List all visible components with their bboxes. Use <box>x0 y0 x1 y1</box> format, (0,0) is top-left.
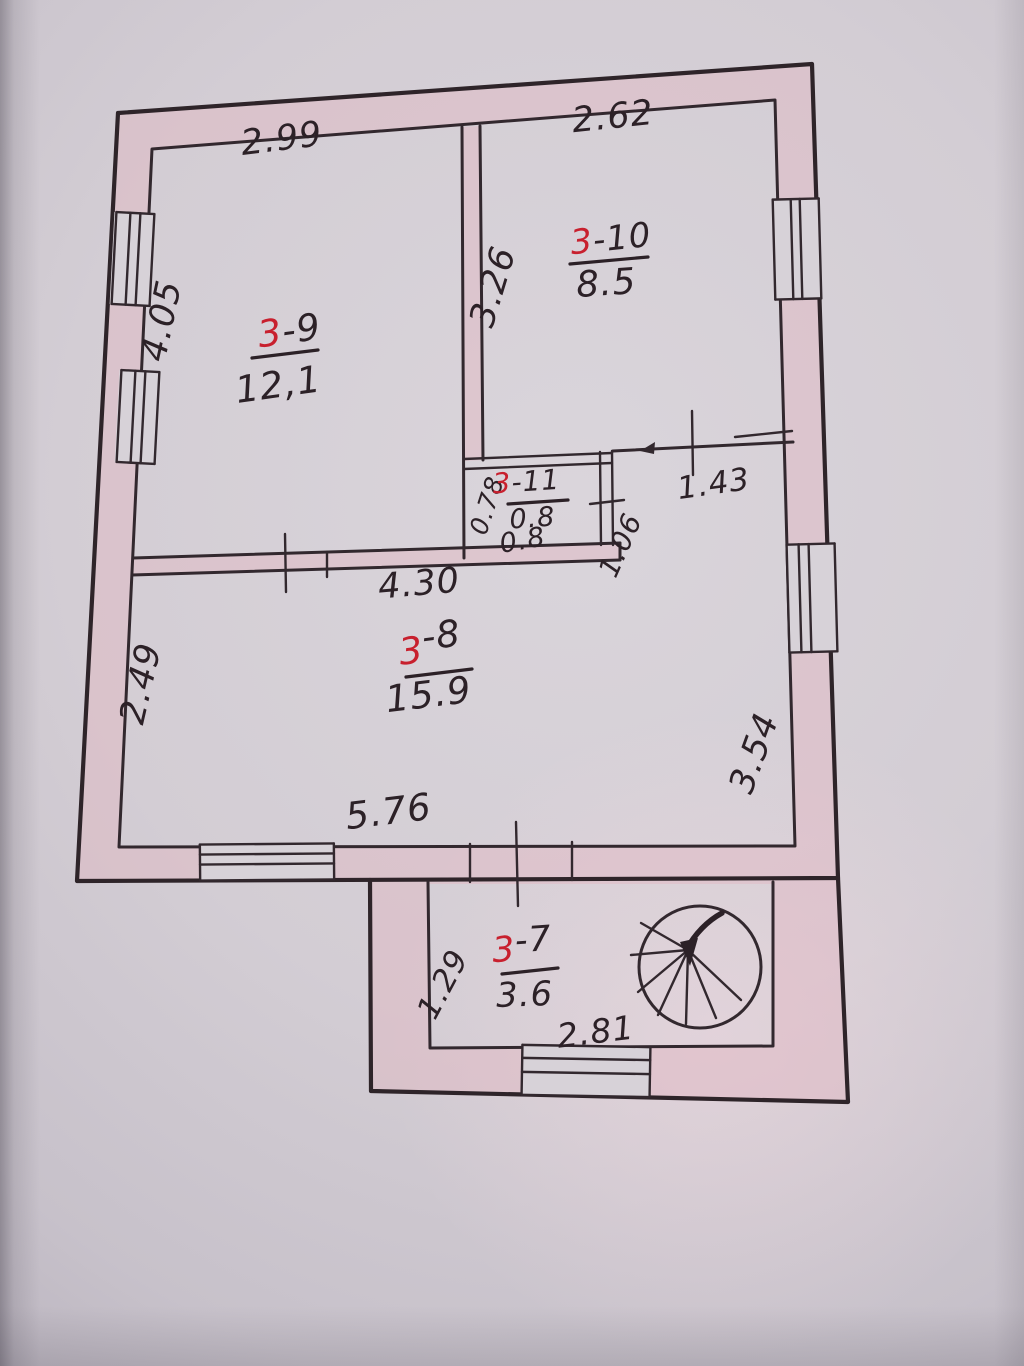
window-bottom-room8 <box>200 843 334 880</box>
spiral-staircase-icon <box>631 906 761 1028</box>
room-label-3-9: 3-9 12,1 <box>232 305 324 412</box>
room-label-3-7: 3-7 3.6 <box>490 919 558 1016</box>
svg-text:3-8: 3-8 <box>395 611 465 673</box>
svg-text:3-10: 3-10 <box>568 215 653 263</box>
window-right-room8 <box>787 543 838 652</box>
svg-text:3-11: 3-11 <box>491 463 561 501</box>
svg-text:3-9: 3-9 <box>255 305 324 356</box>
window-porch-bottom <box>522 1045 651 1097</box>
room-number-red: 3 <box>491 930 517 972</box>
room-number-red: 3 <box>491 466 512 500</box>
dim-mid-wall-width: 4.30 <box>376 561 461 608</box>
room-area: 8.5 <box>575 261 638 306</box>
dimension-labels: 2.99 2.62 4.05 3.26 0.78 1.43 1.06 4.30 … <box>113 93 788 1056</box>
interior-walls <box>132 126 793 575</box>
room-label-3-8: 3-8 15.9 <box>383 611 474 721</box>
room-area: 3.6 <box>495 974 553 1016</box>
svg-text:3-7: 3-7 <box>490 919 553 971</box>
window-left-lower <box>115 370 162 464</box>
room-area: 12,1 <box>232 357 324 412</box>
room-number-suffix: -9 <box>279 305 324 353</box>
room-number-suffix: -11 <box>510 463 561 499</box>
dim-top-right-width: 2.62 <box>570 93 656 141</box>
room-number-suffix: -8 <box>419 611 463 658</box>
dim-bottom-inner-width: 5.76 <box>343 785 434 838</box>
floor-plan: 2.99 2.62 4.05 3.26 0.78 1.43 1.06 4.30 … <box>77 64 848 1102</box>
dim-passage-width-right: 1.43 <box>675 461 752 507</box>
room-number-suffix: -7 <box>513 919 553 961</box>
floor-plan-canvas: 2.99 2.62 4.05 3.26 0.78 1.43 1.06 4.30 … <box>0 0 1024 1366</box>
room-label-3-10: 3-10 8.5 <box>568 215 653 306</box>
dim-top-left-width: 2.99 <box>239 114 325 164</box>
room-labels: 3-9 12,1 3-10 8.5 3-11 0.8 0.8 <box>232 215 653 1016</box>
window-right-room10 <box>773 198 822 299</box>
room-area: 15.9 <box>383 668 474 721</box>
wall-junction-arrow <box>640 442 655 454</box>
room-number-suffix: -10 <box>591 215 653 261</box>
dim-right-lower-height: 3.54 <box>722 708 788 799</box>
